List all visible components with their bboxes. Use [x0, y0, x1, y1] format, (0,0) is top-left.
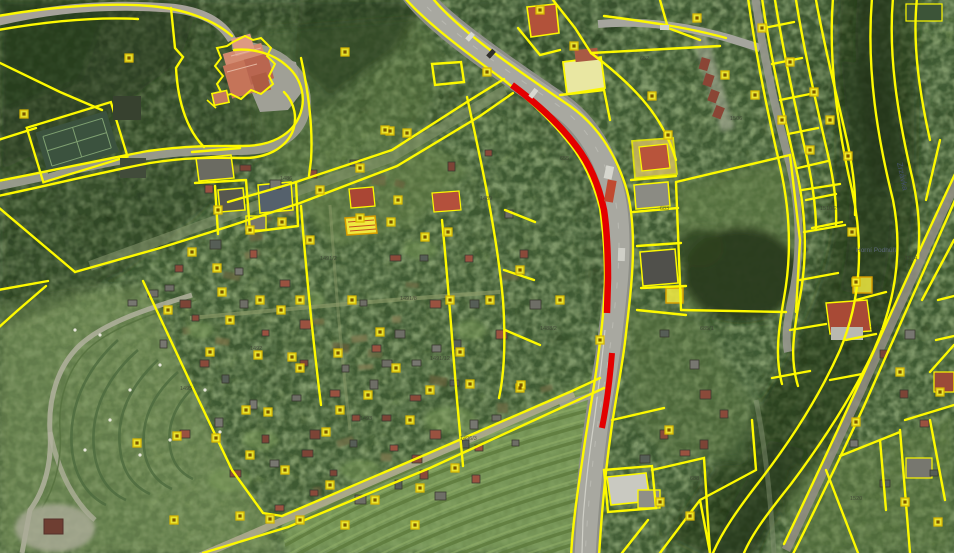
svg-text:1486: 1486: [280, 176, 292, 182]
svg-text:1493: 1493: [360, 416, 372, 422]
svg-text:1489: 1489: [480, 196, 492, 202]
svg-text:655: 655: [560, 156, 569, 162]
svg-text:1495: 1495: [180, 386, 192, 392]
svg-text:652: 652: [640, 56, 649, 62]
svg-text:1491/2: 1491/2: [320, 256, 337, 262]
svg-text:1520: 1520: [850, 496, 862, 502]
svg-text:1492: 1492: [250, 346, 262, 352]
svg-text:1510/2: 1510/2: [820, 206, 837, 212]
svg-text:688: 688: [690, 476, 699, 482]
svg-text:1506: 1506: [730, 116, 742, 122]
svg-text:Horní Podhúří: Horní Podhúří: [856, 247, 897, 254]
svg-text:1496/3: 1496/3: [460, 436, 477, 442]
svg-text:1514: 1514: [905, 256, 917, 262]
svg-text:1491/8: 1491/8: [400, 296, 417, 302]
svg-text:1491/12: 1491/12: [430, 356, 450, 362]
svg-text:1512: 1512: [870, 326, 882, 332]
svg-text:685/1: 685/1: [700, 326, 714, 332]
svg-text:1488/2: 1488/2: [540, 326, 557, 332]
svg-text:683: 683: [660, 206, 669, 212]
